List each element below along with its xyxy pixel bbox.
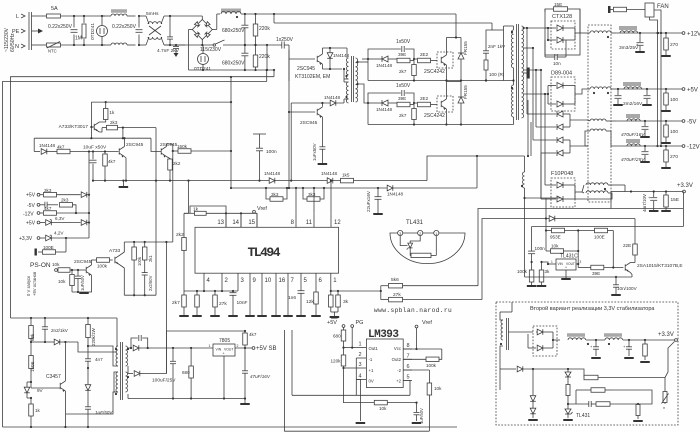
svg-text:120k: 120k — [331, 359, 342, 364]
svg-text:6,3V: 6,3V — [55, 216, 65, 221]
svg-text:15E: 15E — [671, 197, 680, 203]
svg-text:2k1: 2k1 — [148, 255, 153, 262]
svg-text:1N4148: 1N4148 — [376, 107, 393, 112]
svg-text:0V: 0V — [369, 379, 374, 384]
svg-text:TL494: TL494 — [248, 245, 281, 260]
svg-text:CTX128: CTX128 — [552, 14, 572, 20]
svg-text:1k: 1k — [109, 110, 115, 115]
svg-text:+12V: +12V — [687, 32, 700, 38]
svg-text:Второй вариант реализации 3,3V: Второй вариант реализации 3,3V стабилиза… — [530, 305, 655, 312]
svg-text:220k: 220k — [259, 54, 270, 60]
svg-text:15E: 15E — [554, 2, 562, 7]
svg-text:8: 8 — [407, 343, 410, 349]
svg-text:27k: 27k — [219, 301, 227, 307]
svg-text:+2: +2 — [396, 379, 402, 384]
svg-text:5: 5 — [407, 374, 410, 380]
svg-text:12: 12 — [334, 220, 341, 226]
svg-text:10k: 10k — [551, 244, 559, 249]
svg-text:-12V: -12V — [687, 145, 700, 151]
svg-text:www.spblan.narod.ru: www.spblan.narod.ru — [374, 307, 452, 314]
svg-text:1uFx50V: 1uFx50V — [312, 143, 317, 161]
svg-text:5A: 5A — [51, 6, 58, 12]
svg-text:1x250V: 1x250V — [276, 37, 294, 43]
svg-text:1: 1 — [435, 232, 437, 236]
svg-text:+5V: +5V — [26, 221, 36, 227]
svg-text:Out1: Out1 — [369, 346, 379, 351]
svg-text:15: 15 — [248, 220, 255, 226]
svg-text:+3.3V: +3.3V — [658, 332, 674, 338]
svg-text:1uF/50V: 1uF/50V — [419, 408, 424, 424]
svg-text:2SC945: 2SC945 — [297, 66, 315, 72]
svg-text:-2: -2 — [397, 368, 401, 373]
svg-text:3k3: 3k3 — [44, 188, 52, 193]
svg-text:1x50V: 1x50V — [396, 83, 411, 89]
svg-text:1: 1 — [358, 342, 361, 348]
svg-text:1n6: 1n6 — [288, 295, 296, 301]
svg-text:4k7: 4k7 — [108, 159, 116, 164]
svg-text:+5V останов: +5V останов — [32, 271, 37, 296]
svg-text:1N4148: 1N4148 — [264, 171, 281, 176]
svg-text:10uF x50V: 10uF x50V — [83, 145, 107, 151]
svg-text:-5V: -5V — [687, 120, 696, 126]
svg-text:PE: PE — [12, 29, 20, 35]
svg-text:2n2/1kV: 2n2/1kV — [51, 328, 69, 333]
svg-text:2k7: 2k7 — [399, 113, 407, 118]
svg-text:TL431: TL431 — [576, 413, 590, 419]
svg-text:100E: 100E — [594, 235, 605, 240]
svg-text:4,2V: 4,2V — [54, 231, 64, 236]
svg-text:A733/KT3017: A733/KT3017 — [59, 124, 89, 130]
svg-text:3k: 3k — [545, 269, 551, 274]
svg-text:220k/1W: 220k/1W — [91, 327, 96, 346]
svg-text:-5V: -5V — [27, 203, 35, 209]
svg-text:12k: 12k — [306, 299, 314, 305]
svg-text:Vcc: Vcc — [394, 346, 402, 351]
svg-text:100k: 100k — [97, 264, 108, 269]
svg-text:2: 2 — [419, 232, 421, 236]
svg-text:3k3: 3k3 — [271, 192, 279, 197]
svg-text:1N4148: 1N4148 — [324, 95, 341, 100]
svg-text:0.22x250V: 0.22x250V — [112, 24, 137, 30]
svg-text:1N4148: 1N4148 — [39, 143, 56, 148]
svg-text:10nF: 10nF — [237, 300, 248, 306]
svg-text:5k6: 5k6 — [391, 277, 399, 283]
svg-text:2SC4242: 2SC4242 — [424, 113, 445, 119]
svg-text:3: 3 — [358, 362, 361, 368]
svg-text:47uF/16V: 47uF/16V — [250, 374, 271, 379]
svg-text:PS-ON: PS-ON — [30, 262, 51, 269]
svg-text:3k: 3k — [343, 299, 349, 305]
svg-text:16: 16 — [279, 278, 286, 284]
svg-text:100k: 100k — [426, 363, 437, 368]
svg-text:A733: A733 — [109, 248, 121, 254]
svg-text:2k2: 2k2 — [176, 232, 184, 238]
svg-text:2k2: 2k2 — [173, 161, 181, 166]
svg-text:-1: -1 — [369, 357, 373, 362]
svg-text:2m2/16V: 2m2/16V — [623, 101, 643, 107]
svg-text:22uFx16V: 22uFx16V — [366, 190, 371, 212]
svg-text:100k: 100k — [517, 269, 528, 274]
svg-text:4k7: 4k7 — [44, 206, 52, 211]
svg-text:39E: 39E — [592, 271, 600, 276]
svg-text:2E2: 2E2 — [420, 96, 429, 101]
svg-text:1N4148: 1N4148 — [387, 192, 404, 197]
svg-text:2SC945: 2SC945 — [300, 120, 318, 126]
svg-text:2k7: 2k7 — [399, 69, 407, 74]
svg-text:VOUT: VOUT — [224, 348, 233, 352]
svg-text:2E2: 2E2 — [420, 52, 429, 57]
svg-text:100n: 100n — [266, 149, 277, 155]
svg-text:2x2/50V: 2x2/50V — [148, 275, 153, 291]
svg-text:2SC945: 2SC945 — [74, 259, 92, 265]
svg-text:10k: 10k — [58, 279, 66, 284]
svg-text:680x250V: 680x250V — [222, 61, 245, 67]
svg-text:+3,3V: +3,3V — [19, 236, 33, 242]
svg-text:VIN: VIN — [216, 348, 222, 352]
svg-text:2: 2 — [358, 352, 361, 358]
svg-text:4k7: 4k7 — [249, 332, 257, 337]
svg-text:39E: 39E — [398, 52, 406, 57]
svg-text:+5V SB: +5V SB — [256, 346, 277, 352]
svg-text:100: 100 — [670, 129, 678, 135]
svg-text:7: 7 — [407, 353, 410, 359]
svg-text:10k: 10k — [434, 386, 442, 391]
svg-text:L: L — [16, 14, 19, 20]
svg-text:0 V запуск: 0 V запуск — [26, 276, 31, 296]
svg-text:9V: 9V — [37, 388, 44, 393]
svg-text:680x250V: 680x250V — [222, 28, 245, 34]
svg-text:2SC945: 2SC945 — [160, 142, 178, 148]
svg-text:2k3: 2k3 — [110, 120, 118, 125]
svg-text:PG: PG — [356, 320, 364, 326]
svg-text:+5V: +5V — [687, 88, 698, 94]
svg-text:100k: 100k — [137, 256, 142, 266]
svg-text:3: 3 — [580, 260, 582, 264]
svg-text:-12V: -12V — [23, 212, 34, 218]
svg-text:1: 1 — [551, 260, 553, 264]
svg-text:10n/100V: 10n/100V — [617, 286, 638, 291]
svg-text:1x50V: 1x50V — [396, 39, 411, 45]
svg-text:*: * — [663, 407, 665, 413]
svg-text:NTC: NTC — [48, 49, 57, 54]
svg-text:39E: 39E — [398, 96, 406, 101]
svg-text:0TD241: 0TD241 — [90, 23, 96, 40]
svg-text:VOUT: VOUT — [566, 262, 575, 266]
svg-text:1k: 1k — [35, 408, 41, 413]
svg-text:4k7: 4k7 — [57, 145, 65, 150]
svg-text:KT3102EM, EM: KT3102EM, EM — [295, 74, 330, 80]
svg-text:10k: 10k — [379, 406, 387, 411]
svg-text:TL431: TL431 — [406, 220, 424, 226]
svg-text:1N4148: 1N4148 — [321, 171, 338, 176]
svg-text:10: 10 — [265, 278, 272, 284]
svg-text:100: 100 — [670, 97, 678, 103]
svg-text:14: 14 — [232, 220, 239, 226]
svg-text:+5V: +5V — [26, 193, 36, 199]
svg-text:0.22x250V: 0.22x250V — [48, 24, 73, 30]
svg-text:270: 270 — [670, 42, 678, 48]
svg-text:1: 1 — [209, 344, 211, 348]
svg-text:680: 680 — [182, 370, 190, 375]
svg-text:100E: 100E — [43, 245, 54, 250]
svg-text:680: 680 — [333, 334, 341, 339]
svg-text:4m7/10V: 4m7/10V — [642, 194, 647, 212]
svg-text:C3457: C3457 — [46, 374, 61, 380]
svg-text:6: 6 — [407, 364, 410, 370]
svg-text:Out2: Out2 — [392, 357, 402, 362]
svg-text:1k5: 1k5 — [342, 173, 350, 178]
svg-text:1uF/50V: 1uF/50V — [80, 275, 85, 291]
svg-text:2SC945: 2SC945 — [126, 142, 144, 148]
svg-text:4n7: 4n7 — [95, 357, 103, 362]
svg-text:4: 4 — [358, 374, 361, 380]
svg-text:N: N — [15, 44, 19, 50]
svg-text:220k: 220k — [259, 26, 270, 32]
svg-text:+: + — [565, 266, 567, 270]
svg-text:+3.3V: +3.3V — [677, 183, 693, 189]
svg-text:+5V: +5V — [327, 320, 337, 326]
svg-text:270: 270 — [670, 154, 678, 160]
svg-text:2k7: 2k7 — [172, 300, 180, 306]
svg-text:3m3/25V: 3m3/25V — [619, 45, 639, 51]
svg-text:+1: +1 — [369, 368, 375, 373]
svg-text:22E: 22E — [623, 243, 631, 248]
svg-text:11: 11 — [306, 220, 313, 226]
svg-text:D89-004: D89-004 — [551, 71, 572, 77]
svg-text:100n: 100n — [535, 246, 546, 251]
svg-text:VIN: VIN — [558, 262, 564, 266]
svg-text:Vref: Vref — [257, 206, 267, 212]
svg-text:10k: 10k — [52, 262, 60, 267]
svg-text:5mHs: 5mHs — [146, 11, 159, 17]
svg-text:F10P048: F10P048 — [551, 171, 573, 177]
svg-text:953E: 953E — [550, 235, 561, 240]
svg-text:2: 2 — [237, 344, 239, 348]
svg-text:Vref: Vref — [422, 320, 432, 326]
svg-text:100 (R): 100 (R) — [489, 72, 505, 77]
svg-text:10n: 10n — [553, 61, 561, 66]
svg-text:1N4148: 1N4148 — [376, 63, 393, 68]
svg-text:150k: 150k — [177, 144, 188, 149]
svg-text:1k: 1k — [193, 207, 199, 213]
svg-text:2SC4242: 2SC4242 — [424, 69, 445, 75]
svg-text:3: 3 — [399, 232, 401, 236]
svg-text:1M: 1M — [75, 36, 82, 42]
svg-text:13: 13 — [217, 220, 224, 226]
svg-text:3k3: 3k3 — [308, 192, 316, 197]
svg-text:2k3: 2k3 — [61, 198, 69, 203]
svg-text:FAN: FAN — [657, 4, 669, 10]
svg-text:2SA1015/KT3107B,E: 2SA1015/KT3107B,E — [637, 263, 683, 269]
svg-text:7805: 7805 — [219, 338, 230, 344]
